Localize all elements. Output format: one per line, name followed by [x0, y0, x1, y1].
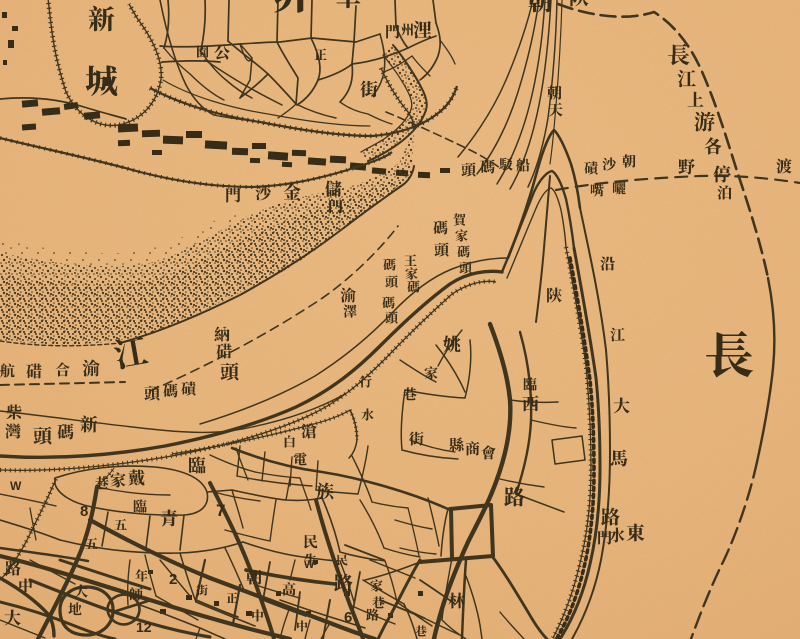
svg-text:2: 2	[169, 571, 177, 588]
svg-text:7: 7	[216, 501, 225, 520]
svg-text:12: 12	[136, 619, 152, 635]
svg-text:6: 6	[344, 609, 352, 626]
svg-text:8: 8	[80, 503, 88, 520]
svg-text:W: W	[304, 559, 315, 571]
svg-text:W: W	[10, 479, 22, 493]
